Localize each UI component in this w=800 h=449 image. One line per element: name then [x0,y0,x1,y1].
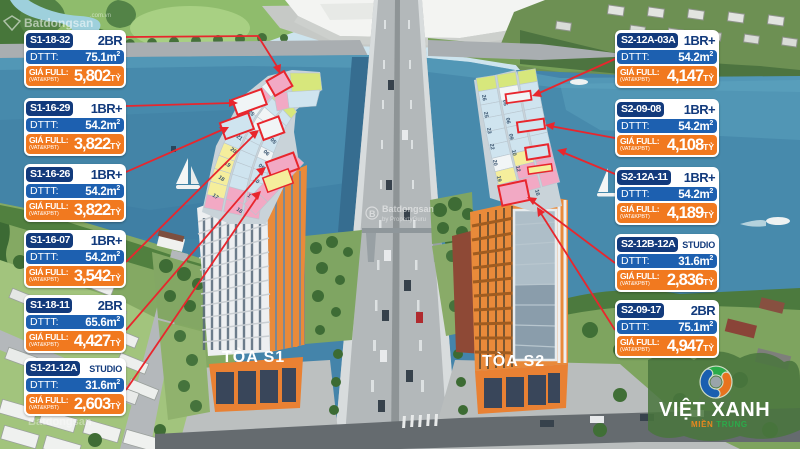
svg-text:TÒA S2: TÒA S2 [482,351,545,370]
svg-text:26: 26 [480,94,487,101]
svg-text:09: 09 [507,133,514,140]
svg-text:Batdongsan: Batdongsan [24,16,93,30]
svg-text:MIỀN TRUNG: MIỀN TRUNG [691,419,748,429]
svg-text:Batdongsan: Batdongsan [28,416,92,428]
svg-text:TÒA S1: TÒA S1 [222,347,285,366]
svg-text:VIỆT XANH: VIỆT XANH [659,397,770,421]
svg-text:06: 06 [504,117,511,124]
svg-text:.com.vn: .com.vn [90,13,111,19]
svg-text:20: 20 [491,159,498,166]
svg-text:23: 23 [485,127,492,134]
svg-text:10: 10 [510,149,517,156]
svg-text:by PropertyGuru: by PropertyGuru [382,217,426,223]
svg-text:19: 19 [495,175,502,182]
svg-text:B: B [369,209,376,219]
svg-text:22: 22 [488,143,495,150]
svg-text:12: 12 [514,165,521,172]
svg-text:Batdongsan: Batdongsan [382,204,434,214]
svg-text:25: 25 [482,111,489,118]
